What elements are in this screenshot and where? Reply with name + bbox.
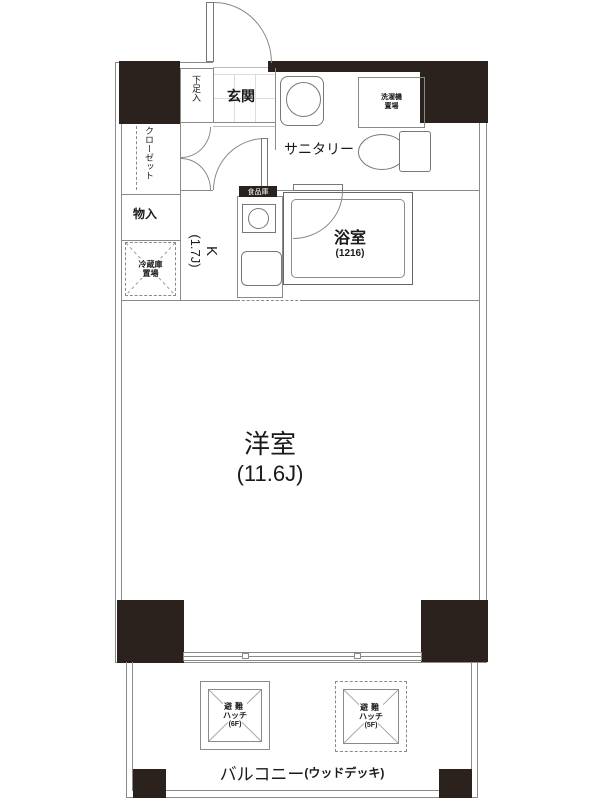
bath-door-leaf [293,184,343,191]
escape-hatch-6f-inner: 避難 ハッチ (6F) [208,689,262,742]
pillar-bottom-right [421,600,488,662]
room-top-wall-left [122,300,237,301]
western-room-label-group: 洋室 (11.6J) [170,418,370,492]
shoe-cabinet-label: 下足入 [190,75,203,121]
entry-door-leaf [206,2,214,62]
bathroom-label-group: 浴室 (1216) [303,220,397,262]
laundry-space-label: 洗濯機 置場 [359,78,424,127]
hall-door-leaf [261,138,268,190]
pillar-top-left [119,61,180,124]
partition-hall-right [275,68,276,150]
bathroom-label: 浴室 [334,224,366,248]
closet-hanger-dashed-line [136,126,137,190]
entrance-threshold-line [213,67,270,68]
sink-fixture [241,251,282,286]
escape-hatch-6f: 避難 ハッチ (6F) [200,681,270,750]
fridge-space-box: 冷蔵庫 置場 [125,242,176,296]
western-room-label: 洋室 [244,424,296,461]
pillar-top-right [420,61,488,123]
genkan-step-line2 [213,126,275,127]
closet-bottom-line [122,194,180,195]
genkan-label: 玄関 [227,86,255,106]
window-handle-right [354,653,361,659]
balcony-window-center-rail [184,656,421,657]
sanitary-label: サニタリー [284,139,354,159]
washbasin-bowl-circle [286,82,321,117]
escape-hatch-5f-label: 避難 ハッチ (5F) [344,690,398,743]
pantry-label-tag: 食品庫 [239,186,277,197]
wall-y190-a [181,190,213,191]
escape-hatch-6f-label: 避難 ハッチ (6F) [209,690,261,741]
escape-hatch-5f: 避難 ハッチ (5F) [335,681,407,752]
kitchen-label: K (1.7J) [171,219,237,283]
laundry-space-box: 洗濯機 置場 [358,77,425,128]
stove-burner-circle [248,208,269,229]
balcony-label-group: バルコニー (ウッドデッキ) [126,760,478,784]
entry-door-swing-arc [214,2,272,63]
fridge-space-label: 冷蔵庫 置場 [126,243,175,295]
balcony-label: バルコニー [220,760,305,785]
wall-y190-c [343,190,479,191]
closet-label: クローゼット [143,126,156,190]
pillar-bottom-left [117,600,184,663]
escape-hatch-5f-inner: 避難 ハッチ (5F) [343,689,399,744]
storage-label: 物入 [133,205,157,222]
room-top-wall-right [303,300,479,301]
window-handle-left [242,653,249,659]
room-top-opening-dashed [237,300,303,301]
floor-plan: 玄関 下足入 クローゼット 物入 冷蔵庫 置場 食品庫 K (1.7J) サニタ… [0,0,600,800]
balcony-note-label: (ウッドデッキ) [304,764,384,781]
western-room-size-label: (11.6J) [237,461,304,487]
bathroom-size-label: (1216) [336,248,365,259]
toilet-tank [399,131,431,172]
pantry-label: 食品庫 [248,187,269,197]
